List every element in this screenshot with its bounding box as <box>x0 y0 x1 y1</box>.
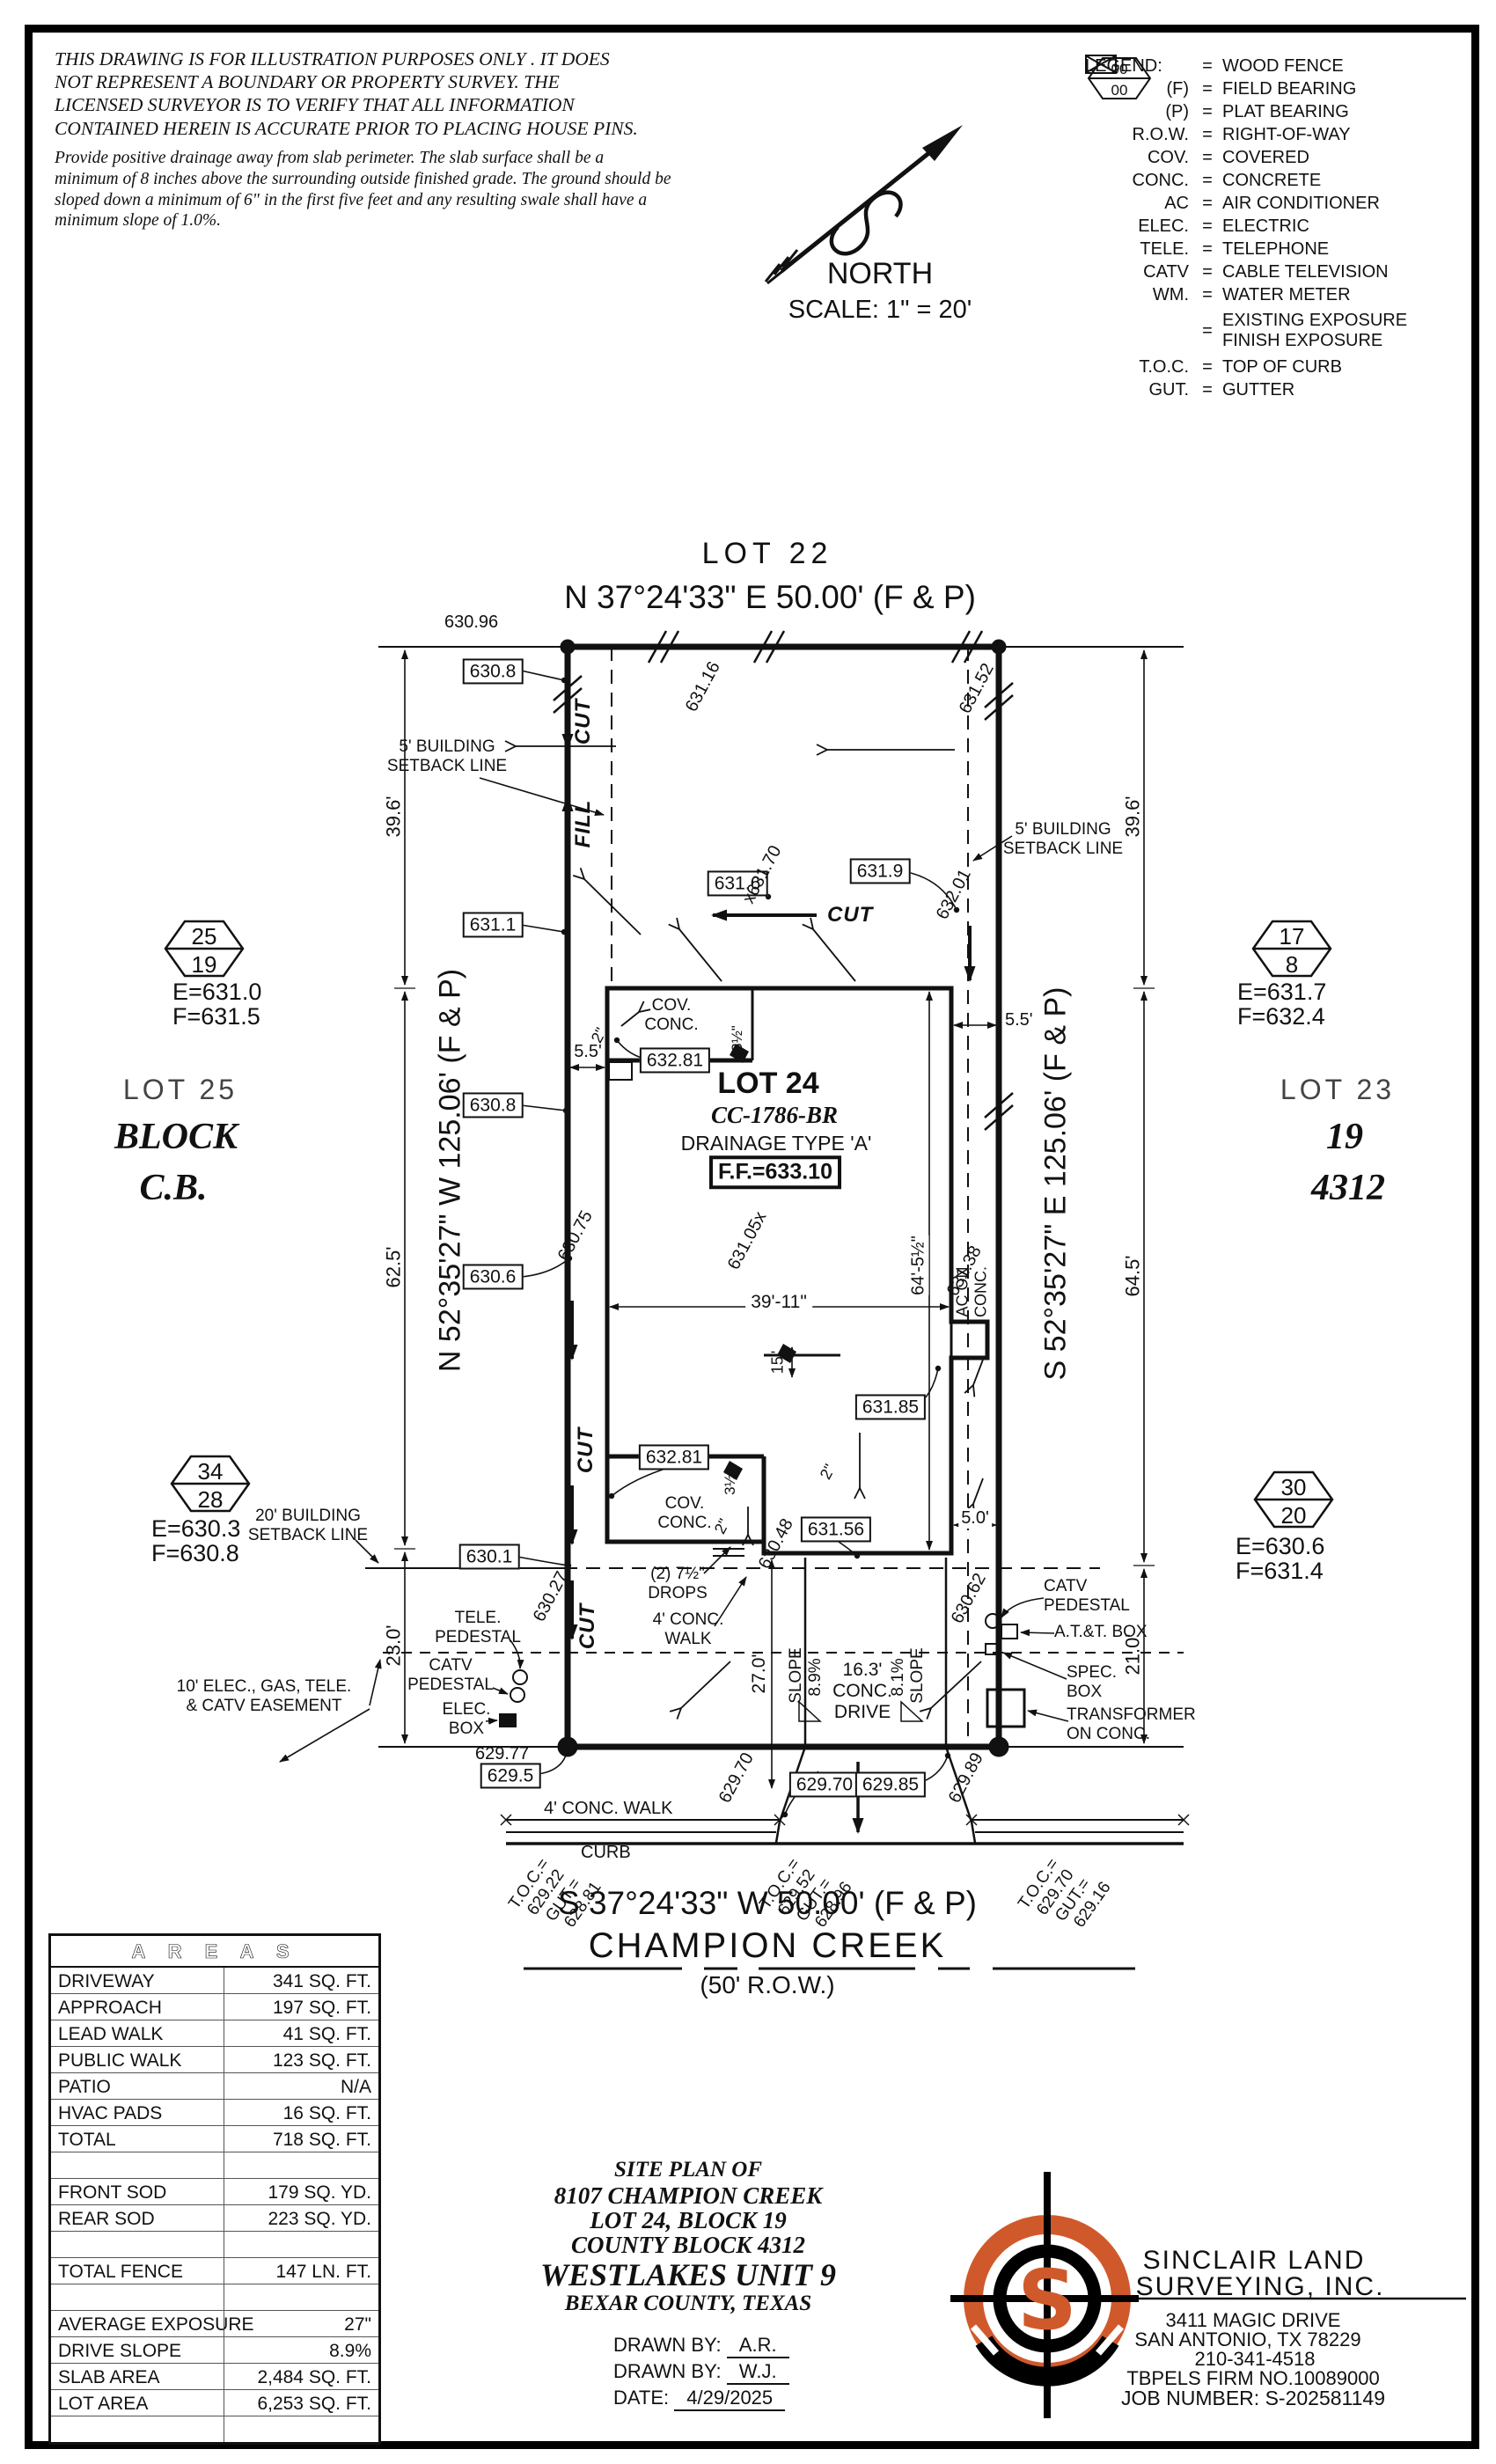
table-row: PUBLIC WALK123 SQ. FT. <box>51 2047 378 2073</box>
elev-630-8a: 630.8 <box>463 658 524 684</box>
easement-label: 10' ELEC., GAS, TELE. & CATV EASEMENT <box>177 1677 352 1716</box>
legend-desc: AIR CONDITIONER <box>1222 194 1451 214</box>
title-address: 8107 CHAMPION CREEK <box>554 2182 823 2210</box>
table-row: HVAC PADS16 SQ. FT. <box>51 2100 378 2126</box>
table-row <box>51 2416 378 2442</box>
disclaimer-caps: THIS DRAWING IS FOR ILLUSTRATION PURPOSE… <box>55 48 741 140</box>
elev-629-77: 629.77 <box>475 1744 529 1764</box>
elev-629-5: 629.5 <box>480 1763 541 1788</box>
hex2-e: E=630.3 <box>151 1515 240 1543</box>
exposure-hexagon-icon: 00 00 <box>1085 55 1154 102</box>
elev-629-85-box: 629.85 <box>855 1771 926 1797</box>
lot25-label: LOT 25 <box>123 1074 238 1106</box>
hex1-existing: 25 <box>192 924 217 950</box>
dim-5-5-left: 5.5' <box>574 1042 602 1062</box>
table-row: SLAB AREA2,484 SQ. FT. <box>51 2364 378 2390</box>
hex3-finish: 8 <box>1286 952 1298 979</box>
legend-sym: ELEC. <box>1085 216 1192 237</box>
slope-81: 8.1% <box>889 1658 908 1696</box>
table-row: DRIVEWAY341 SQ. FT. <box>51 1968 378 1994</box>
dim-39-11: 39'-11" <box>745 1292 812 1313</box>
dim-23-0: 23.0' <box>382 1624 404 1666</box>
logo-letter: S <box>1017 2253 1077 2349</box>
att-box-label: A.T.&T. BOX <box>1054 1623 1148 1642</box>
title-lot-block: LOT 24, BLOCK 19 <box>590 2207 787 2234</box>
exposure-existing-value: 00 <box>1111 61 1128 77</box>
block19-label: 19 <box>1326 1116 1363 1158</box>
disclaimer-drainage-note: Provide positive drainage away from slab… <box>55 148 794 231</box>
legend-sym: CATV <box>1085 262 1192 282</box>
hex2-f: F=630.8 <box>151 1540 239 1567</box>
cut-label-2: CUT <box>574 1427 598 1473</box>
elev-631-1: 631.1 <box>463 912 524 937</box>
transformer-label: TRANSFORMER ON CONC. <box>1067 1705 1196 1744</box>
tele-pedestal-label: TELE. PEDESTAL <box>435 1609 521 1647</box>
drawn-by-2: DRAWN BY: W.J. <box>613 2360 789 2383</box>
plan-code: CC-1786-BR <box>711 1102 838 1129</box>
hex3-e: E=631.7 <box>1237 979 1326 1006</box>
slope-word-right: SLOPE <box>908 1647 928 1703</box>
hex1-e: E=631.0 <box>172 979 261 1006</box>
hex2-existing: 34 <box>198 1459 224 1485</box>
table-row: TOTAL FENCE147 LN. FT. <box>51 2258 378 2284</box>
legend-sym: TELE. <box>1085 239 1192 260</box>
legend-sym: R.O.W. <box>1085 125 1192 145</box>
dim-15: 15" <box>769 1351 788 1374</box>
cut-label-3: CUT <box>576 1603 600 1649</box>
legend-sym: CONC. <box>1085 171 1192 191</box>
elev-631-56: 631.56 <box>801 1516 871 1542</box>
title-subdivision: WESTLAKES UNIT 9 <box>540 2256 836 2293</box>
site-plan-page: S THIS DRAWING IS FOR ILLUSTRATION PURPO… <box>0 0 1496 2464</box>
legend-desc: ELECTRIC <box>1222 216 1451 237</box>
legend-desc: WOOD FENCE <box>1222 56 1451 77</box>
legend-desc: TOP OF CURB <box>1222 357 1451 378</box>
date-line: DATE: 4/29/2025 <box>613 2387 785 2409</box>
lot23-label: LOT 23 <box>1280 1074 1395 1106</box>
elev-630-6: 630.6 <box>463 1264 524 1289</box>
hex2-finish: 28 <box>198 1487 224 1514</box>
areas-table: A R E A S DRIVEWAY341 SQ. FT. APPROACH19… <box>48 1933 381 2445</box>
legend-desc: TELEPHONE <box>1222 239 1451 260</box>
table-row: DRIVE SLOPE8.9% <box>51 2337 378 2364</box>
fence-hash-marks <box>554 631 1013 1130</box>
walk4-street-label: 4' CONC. WALK <box>544 1799 672 1819</box>
legend: LEGEND:=WOOD FENCE (F)=FIELD BEARING (P)… <box>1085 55 1451 401</box>
lot24-label: LOT 24 <box>717 1067 818 1101</box>
hex4-finish: 20 <box>1281 1503 1307 1529</box>
fill-label: FILL <box>571 800 596 848</box>
cov-conc-top: COV. CONC. <box>644 996 698 1035</box>
table-row: LOT AREA6,253 SQ. FT. <box>51 2390 378 2416</box>
table-row: REAR SOD223 SQ. YD. <box>51 2205 378 2232</box>
legend-desc: CABLE TELEVISION <box>1222 262 1451 282</box>
catv-pedestal-left-label: CATV PEDESTAL <box>407 1656 494 1695</box>
drawn-by-1: DRAWN BY: A.R. <box>613 2334 789 2357</box>
table-row: AVERAGE EXPOSURE27" <box>51 2311 378 2337</box>
slope-89: 8.9% <box>806 1658 825 1696</box>
legend-desc: FIELD BEARING <box>1222 79 1451 99</box>
table-row <box>51 2232 378 2258</box>
setback5-left: 5' BUILDING SETBACK LINE <box>387 737 507 776</box>
scale-label: SCALE: 1" = 20' <box>788 296 972 325</box>
spec-box-label: SPEC. BOX <box>1067 1663 1117 1702</box>
bearing-left: N 52°35'27" W 125.06' (F & P) <box>433 969 467 1372</box>
hex1-f: F=631.5 <box>172 1003 260 1030</box>
cut-label-1: CUT <box>571 699 596 744</box>
hex4-e: E=630.6 <box>1236 1533 1324 1560</box>
legend-desc-exposure: EXISTING EXPOSURE FINISH EXPOSURE <box>1222 311 1451 351</box>
elev-631-85: 631.85 <box>855 1394 926 1419</box>
elev-632-81a: 632.81 <box>640 1047 710 1073</box>
street-row: (50' R.O.W.) <box>700 1971 834 1999</box>
legend-sym: COV. <box>1085 148 1192 168</box>
dim-3h-b: 3½" <box>722 1469 739 1495</box>
bearing-right: S 52°35'27" E 125.06' (F & P) <box>1038 987 1073 1381</box>
drops-label: (2) 7½" DROPS <box>648 1565 708 1603</box>
areas-title: A R E A S <box>51 1936 378 1968</box>
exposure-finish-value: 00 <box>1111 82 1128 99</box>
curb-label: CURB <box>581 1843 631 1863</box>
company-name-1: SINCLAIR LAND <box>1143 2246 1366 2276</box>
hex3-existing: 17 <box>1280 924 1305 950</box>
table-row: TOTAL718 SQ. FT. <box>51 2126 378 2152</box>
block-cb: C.B. <box>139 1167 207 1209</box>
company-job-number: JOB NUMBER: S-202581149 <box>1121 2387 1385 2410</box>
legend-desc: CONCRETE <box>1222 171 1451 191</box>
table-row <box>51 2152 378 2179</box>
hex4-f: F=631.4 <box>1236 1558 1324 1585</box>
elec-box-label: ELEC. BOX <box>443 1700 491 1739</box>
legend-sym: AC <box>1085 194 1192 214</box>
setback20-left: 20' BUILDING SETBACK LINE <box>248 1507 368 1545</box>
drive-163-label: 16.3' CONC. DRIVE <box>832 1660 892 1723</box>
dim-3h-a: 3½" <box>729 1025 746 1052</box>
legend-desc: PLAT BEARING <box>1222 102 1451 122</box>
title-site-plan-of: SITE PLAN OF <box>614 2158 762 2182</box>
hex1-finish: 19 <box>192 952 217 979</box>
legend-sym-wm: WM. <box>1153 285 1189 304</box>
catv-pedestal-right-label: CATV PEDESTAL <box>1044 1577 1130 1616</box>
dim-62-5: 62.5' <box>382 1246 404 1287</box>
setback5-right: 5' BUILDING SETBACK LINE <box>1003 820 1123 859</box>
block4312-label: 4312 <box>1311 1167 1385 1209</box>
dim-5-0: 5.0' <box>958 1508 992 1529</box>
slope-word-left: SLOPE <box>787 1647 806 1703</box>
legend-desc: RIGHT-OF-WAY <box>1222 125 1451 145</box>
dim-5-5-right: 5.5' <box>1005 1010 1033 1030</box>
legend-desc: WATER METER <box>1222 285 1451 305</box>
block-word: BLOCK <box>114 1116 238 1158</box>
elev-630-1: 630.1 <box>459 1544 520 1569</box>
table-row: FRONT SOD179 SQ. YD. <box>51 2179 378 2205</box>
table-row <box>51 2284 378 2311</box>
dim-64-5h: 64'-5½" <box>909 1236 929 1295</box>
title-county: BEXAR COUNTY, TEXAS <box>565 2292 811 2316</box>
elev-629-70-box: 629.70 <box>789 1771 860 1797</box>
north-label: NORTH <box>827 257 933 291</box>
elev-632-81b: 632.81 <box>639 1444 709 1470</box>
lot22-label: LOT 22 <box>702 537 833 571</box>
legend-desc: COVERED <box>1222 148 1451 168</box>
finished-floor-elevation: F.F.=633.10 <box>709 1155 841 1189</box>
legend-sym: GUT. <box>1085 380 1192 400</box>
table-row: APPROACH197 SQ. FT. <box>51 1994 378 2020</box>
legend-sym: (P) <box>1085 102 1192 122</box>
cut-label-top: CUT <box>827 903 873 928</box>
title-county-block: COUNTY BLOCK 4312 <box>571 2232 805 2259</box>
dim-64-5: 64.5' <box>1121 1255 1143 1296</box>
walk4-house-label: 4' CONC. WALK <box>653 1610 724 1649</box>
dim-39-6-left: 39.6' <box>382 796 404 837</box>
legend-sym: T.O.C. <box>1085 357 1192 378</box>
cov-conc-bottom: COV. CONC. <box>657 1494 711 1533</box>
elev-630-8b: 630.8 <box>463 1092 524 1118</box>
dim-27-0: 27.0' <box>749 1654 770 1694</box>
elev-630-96: 630.96 <box>444 612 498 633</box>
bearing-top: N 37°24'33" E 50.00' (F & P) <box>564 579 976 617</box>
hex3-f: F=632.4 <box>1237 1003 1325 1030</box>
street-name: CHAMPION CREEK <box>589 1925 947 1966</box>
dim-39-6-right: 39.6' <box>1121 796 1143 837</box>
company-name-2: SURVEYING, INC. <box>1136 2272 1385 2302</box>
table-row: PATION/A <box>51 2073 378 2100</box>
table-row: LEAD WALK41 SQ. FT. <box>51 2020 378 2047</box>
legend-desc: GUTTER <box>1222 380 1451 400</box>
elev-631-9: 631.9 <box>850 858 911 884</box>
hex4-existing: 30 <box>1281 1475 1307 1501</box>
drainage-type: DRAINAGE TYPE 'A' <box>681 1132 872 1155</box>
